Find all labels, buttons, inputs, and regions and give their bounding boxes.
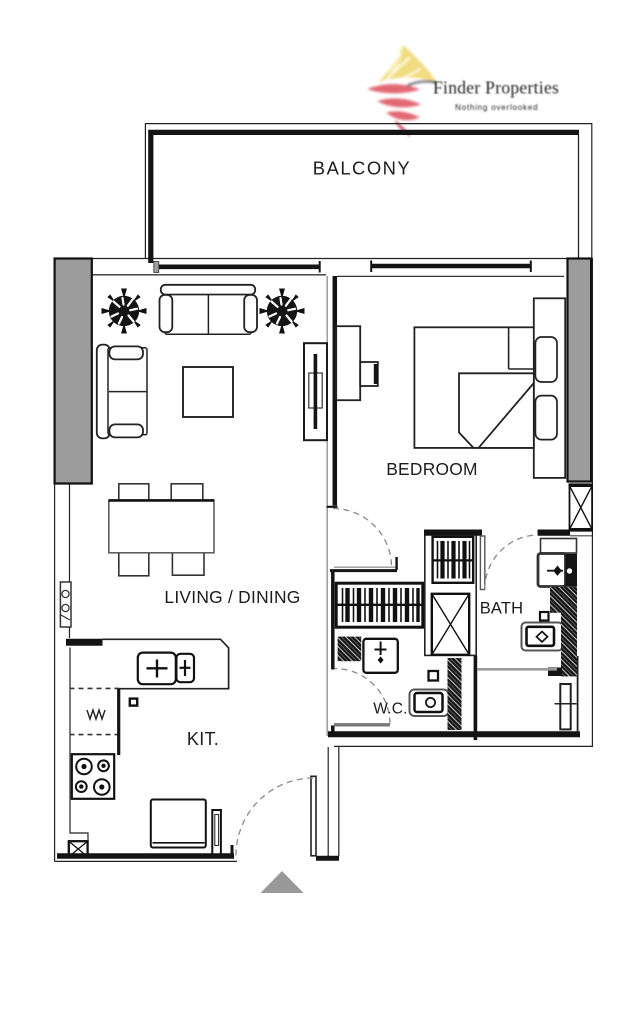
svg-text:BALCONY: BALCONY (313, 158, 411, 179)
svg-text:Nothing overlooked: Nothing overlooked (455, 103, 538, 112)
svg-text:KIT.: KIT. (187, 729, 219, 749)
svg-text:Finder Properties: Finder Properties (433, 78, 559, 98)
svg-text:LIVING / DINING: LIVING / DINING (164, 587, 300, 607)
svg-text:W.C.: W.C. (373, 701, 407, 718)
svg-text:BEDROOM: BEDROOM (386, 459, 478, 479)
svg-text:BATH: BATH (480, 600, 524, 618)
